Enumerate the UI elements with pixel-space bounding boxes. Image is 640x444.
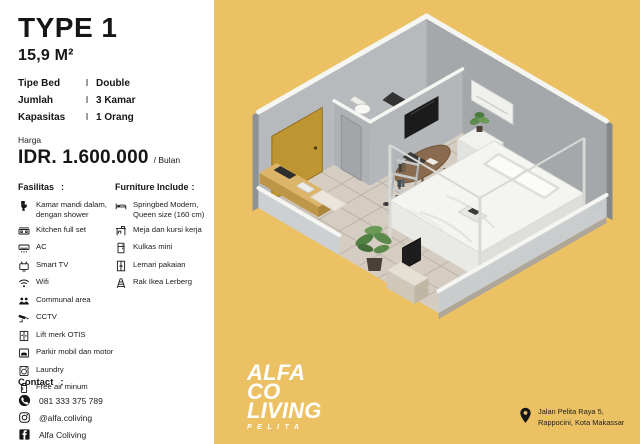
toilet-icon bbox=[18, 200, 30, 212]
facility-item: Parkir mobil dan motor bbox=[18, 347, 115, 359]
furniture-item: Rak Ikea Lerberg bbox=[115, 277, 214, 289]
spec-label: Kapasitas bbox=[18, 112, 78, 123]
spec-separator: I bbox=[78, 78, 96, 89]
facility-item: Wifi bbox=[18, 277, 115, 289]
brand-subtitle: PELITA bbox=[247, 424, 322, 431]
phone-number: 081 333 375 789 bbox=[39, 396, 103, 406]
contact-title: Contact: bbox=[18, 377, 103, 388]
price-amount: IDR. 1.600.000 bbox=[18, 147, 149, 169]
furniture-section: Furniture Include: Springbed Modern, Que… bbox=[115, 182, 214, 400]
facility-item: Laundry bbox=[18, 365, 115, 377]
facility-item: Smart TV bbox=[18, 260, 115, 272]
elevator-icon bbox=[18, 330, 30, 342]
people-icon bbox=[18, 295, 30, 307]
spec-row: Jumlah I 3 Kamar bbox=[18, 95, 214, 106]
kitchen-icon bbox=[18, 225, 30, 237]
bathroom-door bbox=[341, 115, 361, 181]
page-title: TYPE 1 bbox=[18, 14, 214, 42]
tv-icon bbox=[18, 260, 30, 272]
spec-label: Jumlah bbox=[18, 95, 78, 106]
furniture-item: Lemari pakaian bbox=[115, 260, 214, 272]
facility-item: Communal area bbox=[18, 295, 115, 307]
shelf-icon bbox=[115, 277, 127, 289]
cctv-icon bbox=[18, 312, 30, 324]
flyer-canvas: TYPE 1 15,9 M² Tipe Bed I Double Jumlah … bbox=[0, 0, 640, 444]
facility-item: Lift merk OTIS bbox=[18, 330, 115, 342]
spec-value: 1 Orang bbox=[96, 112, 134, 123]
spec-list: Tipe Bed I Double Jumlah I 3 Kamar Kapas… bbox=[18, 78, 214, 123]
spec-value: 3 Kamar bbox=[96, 95, 135, 106]
address-block: Jalan Pelita Raya 5, Rappocini, Kota Mak… bbox=[519, 407, 624, 428]
price-period: / Bulan bbox=[154, 155, 180, 165]
location-pin-icon bbox=[519, 407, 532, 424]
facilities-title: Fasilitas: bbox=[18, 182, 115, 192]
spec-label: Tipe Bed bbox=[18, 78, 78, 89]
contact-item: Alfa Coliving bbox=[18, 428, 103, 441]
phone-icon bbox=[18, 394, 31, 407]
ac-icon bbox=[18, 242, 30, 254]
facility-item: Kamar mandi dalam, dengan shower bbox=[18, 200, 115, 219]
parking-icon bbox=[18, 347, 30, 359]
contact-item: 081 333 375 789 bbox=[18, 394, 103, 407]
facilities-section: Fasilitas: Kamar mandi dalam, dengan sho… bbox=[18, 182, 115, 400]
instagram-icon bbox=[18, 411, 31, 424]
price-label: Harga bbox=[18, 135, 214, 145]
price-block: Harga IDR. 1.600.000 / Bulan bbox=[18, 135, 214, 169]
furniture-item: Meja dan kursi kerja bbox=[115, 225, 214, 237]
info-panel: TYPE 1 15,9 M² Tipe Bed I Double Jumlah … bbox=[0, 0, 214, 444]
contact-section: Contact: 081 333 375 789 @alfa.coliving … bbox=[18, 377, 103, 444]
facility-item: CCTV bbox=[18, 312, 115, 324]
brand-logo: ALFA CO LIVING PELITA bbox=[247, 363, 322, 431]
room-3d-illustration bbox=[214, 0, 640, 420]
bed-icon bbox=[115, 200, 127, 212]
furniture-item: Kulkas mini bbox=[115, 242, 214, 254]
spec-value: Double bbox=[96, 78, 130, 89]
door-handle bbox=[314, 146, 317, 149]
facility-item: AC bbox=[18, 242, 115, 254]
spec-separator: I bbox=[78, 112, 96, 123]
wifi-icon bbox=[18, 277, 30, 289]
instagram-handle: @alfa.coliving bbox=[39, 413, 92, 423]
facility-item: Kitchen full set bbox=[18, 225, 115, 237]
address-line-1: Jalan Pelita Raya 5, bbox=[538, 407, 624, 418]
furniture-title: Furniture Include: bbox=[115, 182, 214, 192]
spec-row: Tipe Bed I Double bbox=[18, 78, 214, 89]
wardrobe-icon bbox=[115, 260, 127, 272]
address-line-2: Rappocini, Kota Makassar bbox=[538, 418, 624, 429]
brand-line-3: LIVING bbox=[247, 401, 322, 420]
spec-row: Kapasitas I 1 Orang bbox=[18, 112, 214, 123]
contact-item: @alfa.coliving bbox=[18, 411, 103, 424]
furniture-item: Springbed Modern, Queen size (160 cm) bbox=[115, 200, 214, 219]
spec-separator: I bbox=[78, 95, 96, 106]
desk-icon bbox=[115, 225, 127, 237]
facebook-icon bbox=[18, 428, 31, 441]
facebook-name: Alfa Coliving bbox=[39, 430, 86, 440]
fridge-icon bbox=[115, 242, 127, 254]
address-text: Jalan Pelita Raya 5, Rappocini, Kota Mak… bbox=[538, 407, 624, 428]
room-area: 15,9 M² bbox=[18, 47, 214, 65]
laundry-icon bbox=[18, 365, 30, 377]
